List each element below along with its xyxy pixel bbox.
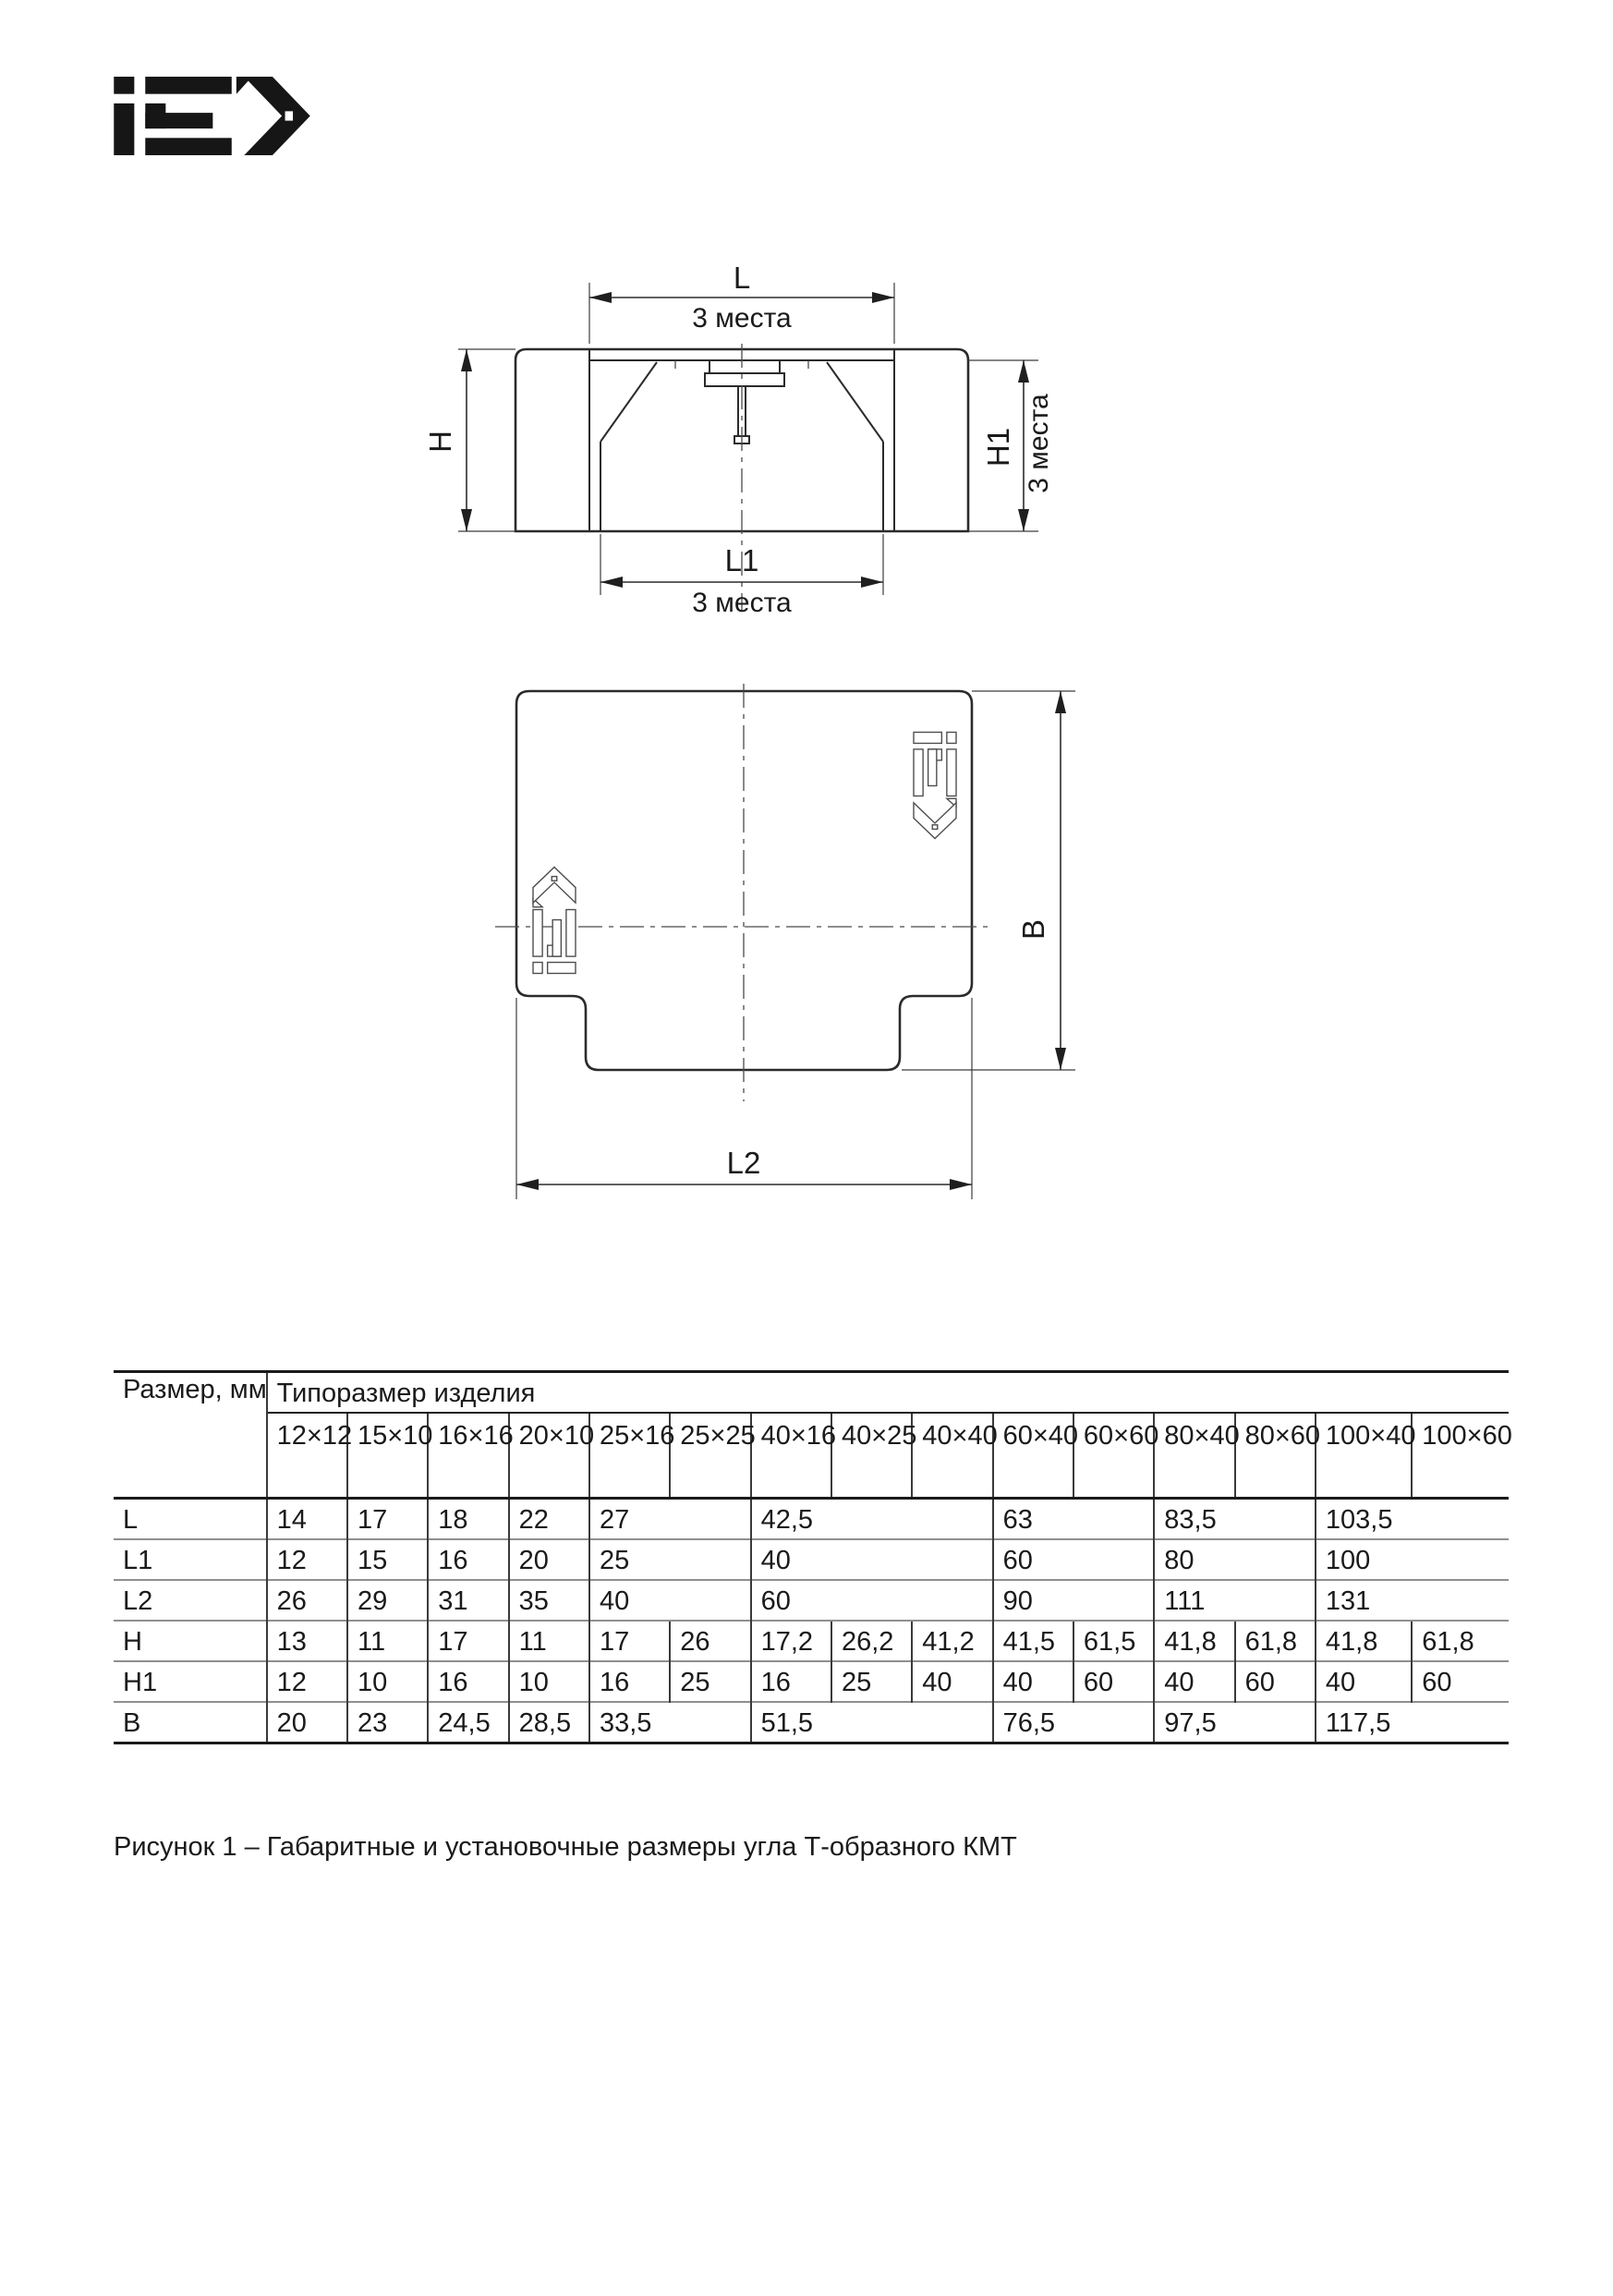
dimensions-tbody: L141718222742,56383,5103,5L1121516202540… xyxy=(114,1499,1509,1743)
row-header: L1 xyxy=(114,1539,267,1580)
row-header: B xyxy=(114,1702,267,1743)
size-header: 80×60 xyxy=(1235,1413,1316,1499)
table-cell: 40 xyxy=(993,1661,1073,1702)
table-cell: 11 xyxy=(347,1621,428,1661)
table-cell: 17 xyxy=(347,1499,428,1540)
dim-label-l-places: 3 места xyxy=(692,303,792,334)
size-header: 100×60 xyxy=(1412,1413,1509,1499)
size-header: 60×60 xyxy=(1073,1413,1154,1499)
table-cell: 80 xyxy=(1154,1539,1316,1580)
size-header: 40×25 xyxy=(831,1413,912,1499)
table-cell: 111 xyxy=(1154,1580,1316,1621)
table-cell: 117,5 xyxy=(1316,1702,1509,1743)
table-cell: 40 xyxy=(751,1539,993,1580)
table-cell: 10 xyxy=(509,1661,589,1702)
table-cell: 41,5 xyxy=(993,1621,1073,1661)
table-cell: 76,5 xyxy=(993,1702,1155,1743)
row-header: H1 xyxy=(114,1661,267,1702)
table-cell: 13 xyxy=(267,1621,347,1661)
table-cell: 20 xyxy=(267,1702,347,1743)
size-header: 80×40 xyxy=(1154,1413,1234,1499)
size-header: 40×40 xyxy=(912,1413,992,1499)
table-cell: 35 xyxy=(509,1580,589,1621)
table-cell: 40 xyxy=(1316,1661,1412,1702)
table-cell: 11 xyxy=(509,1621,589,1661)
row-header: L xyxy=(114,1499,267,1540)
table-cell: 97,5 xyxy=(1154,1702,1316,1743)
size-header: 20×10 xyxy=(509,1413,589,1499)
table-cell: 41,8 xyxy=(1154,1621,1234,1661)
table-row: L141718222742,56383,5103,5 xyxy=(114,1499,1509,1540)
table-cell: 17 xyxy=(428,1621,508,1661)
table-cell: 40 xyxy=(912,1661,992,1702)
size-header: 16×16 xyxy=(428,1413,508,1499)
table-cell: 23 xyxy=(347,1702,428,1743)
table-cell: 24,5 xyxy=(428,1702,508,1743)
table-cell: 29 xyxy=(347,1580,428,1621)
table-cell: 61,5 xyxy=(1073,1621,1154,1661)
table-cell: 25 xyxy=(589,1539,751,1580)
table-cell: 31 xyxy=(428,1580,508,1621)
size-header: 100×40 xyxy=(1316,1413,1412,1499)
corner-header: Размер, мм xyxy=(114,1372,267,1499)
dim-label-b: B xyxy=(1016,919,1050,940)
table-cell: 22 xyxy=(509,1499,589,1540)
table-row: L226293135406090111131 xyxy=(114,1580,1509,1621)
group-header: Типоразмер изделия xyxy=(267,1372,1509,1414)
table-cell: 16 xyxy=(751,1661,831,1702)
table-cell: 17 xyxy=(589,1621,670,1661)
table-cell: 12 xyxy=(267,1661,347,1702)
dim-label-h: H xyxy=(423,431,457,453)
front-view: L 3 места H H1 3 места L1 3 места xyxy=(423,261,1054,618)
iek-embossed-logo xyxy=(914,733,956,839)
dim-label-h1: H1 xyxy=(981,428,1015,467)
dim-label-l: L xyxy=(734,261,750,295)
iek-logo-glyphs xyxy=(114,77,310,155)
table-cell: 40 xyxy=(589,1580,751,1621)
table-cell: 10 xyxy=(347,1661,428,1702)
table-cell: 17,2 xyxy=(751,1621,831,1661)
table-cell: 42,5 xyxy=(751,1499,993,1540)
table-cell: 26,2 xyxy=(831,1621,912,1661)
dim-label-l1-places: 3 места xyxy=(692,588,792,618)
table-row: H1121016101625162540406040604060 xyxy=(114,1661,1509,1702)
row-header: L2 xyxy=(114,1580,267,1621)
table-cell: 60 xyxy=(751,1580,993,1621)
table-cell: 60 xyxy=(1412,1661,1509,1702)
table-cell: 40 xyxy=(1154,1661,1234,1702)
table-cell: 83,5 xyxy=(1154,1499,1316,1540)
table-row: H13111711172617,226,241,241,561,541,861,… xyxy=(114,1621,1509,1661)
iek-logo xyxy=(113,77,311,155)
iek-embossed-logo xyxy=(533,868,576,974)
size-header: 25×25 xyxy=(670,1413,750,1499)
document-page: L 3 места H H1 3 места L1 3 места xyxy=(0,0,1613,2296)
table-cell: 103,5 xyxy=(1316,1499,1509,1540)
size-header: 60×40 xyxy=(993,1413,1073,1499)
technical-drawing: L 3 места H H1 3 места L1 3 места xyxy=(406,249,1173,1229)
table-cell: 60 xyxy=(993,1539,1155,1580)
table-cell: 33,5 xyxy=(589,1702,751,1743)
table-cell: 60 xyxy=(1073,1661,1154,1702)
dim-label-l1: L1 xyxy=(725,543,759,577)
table-row: L11215162025406080100 xyxy=(114,1539,1509,1580)
size-header: 40×16 xyxy=(751,1413,831,1499)
table-cell: 51,5 xyxy=(751,1702,993,1743)
table-cell: 28,5 xyxy=(509,1702,589,1743)
figure-caption: Рисунок 1 – Габаритные и установочные ра… xyxy=(114,1832,1017,1863)
table-cell: 131 xyxy=(1316,1580,1509,1621)
table-cell: 16 xyxy=(428,1661,508,1702)
table-cell: 15 xyxy=(347,1539,428,1580)
size-header: 12×12 xyxy=(267,1413,347,1499)
row-header: H xyxy=(114,1621,267,1661)
table-cell: 26 xyxy=(670,1621,750,1661)
table-group-header-row: Размер, мм Типоразмер изделия xyxy=(114,1372,1509,1414)
table-cell: 16 xyxy=(428,1539,508,1580)
size-header-row: 12×1215×1016×1620×1025×1625×2540×1640×25… xyxy=(114,1413,1509,1499)
table-cell: 18 xyxy=(428,1499,508,1540)
table-cell: 25 xyxy=(670,1661,750,1702)
size-header: 15×10 xyxy=(347,1413,428,1499)
table-cell: 90 xyxy=(993,1580,1155,1621)
dim-label-l2: L2 xyxy=(727,1146,761,1180)
table-cell: 12 xyxy=(267,1539,347,1580)
table-cell: 100 xyxy=(1316,1539,1509,1580)
table-cell: 26 xyxy=(267,1580,347,1621)
dimensions-table: Размер, мм Типоразмер изделия 12×1215×10… xyxy=(114,1370,1509,1744)
table-cell: 27 xyxy=(589,1499,751,1540)
table-cell: 41,8 xyxy=(1316,1621,1412,1661)
table-cell: 14 xyxy=(267,1499,347,1540)
table-row: B202324,528,533,551,576,597,5117,5 xyxy=(114,1702,1509,1743)
top-view: B L2 xyxy=(495,684,1075,1199)
table-cell: 20 xyxy=(509,1539,589,1580)
dim-label-h1-places: 3 места xyxy=(1024,394,1054,493)
table-cell: 41,2 xyxy=(912,1621,992,1661)
table-cell: 61,8 xyxy=(1412,1621,1509,1661)
table-cell: 60 xyxy=(1235,1661,1316,1702)
table-cell: 61,8 xyxy=(1235,1621,1316,1661)
table-cell: 25 xyxy=(831,1661,912,1702)
table-cell: 16 xyxy=(589,1661,670,1702)
table-cell: 63 xyxy=(993,1499,1155,1540)
size-header: 25×16 xyxy=(589,1413,670,1499)
